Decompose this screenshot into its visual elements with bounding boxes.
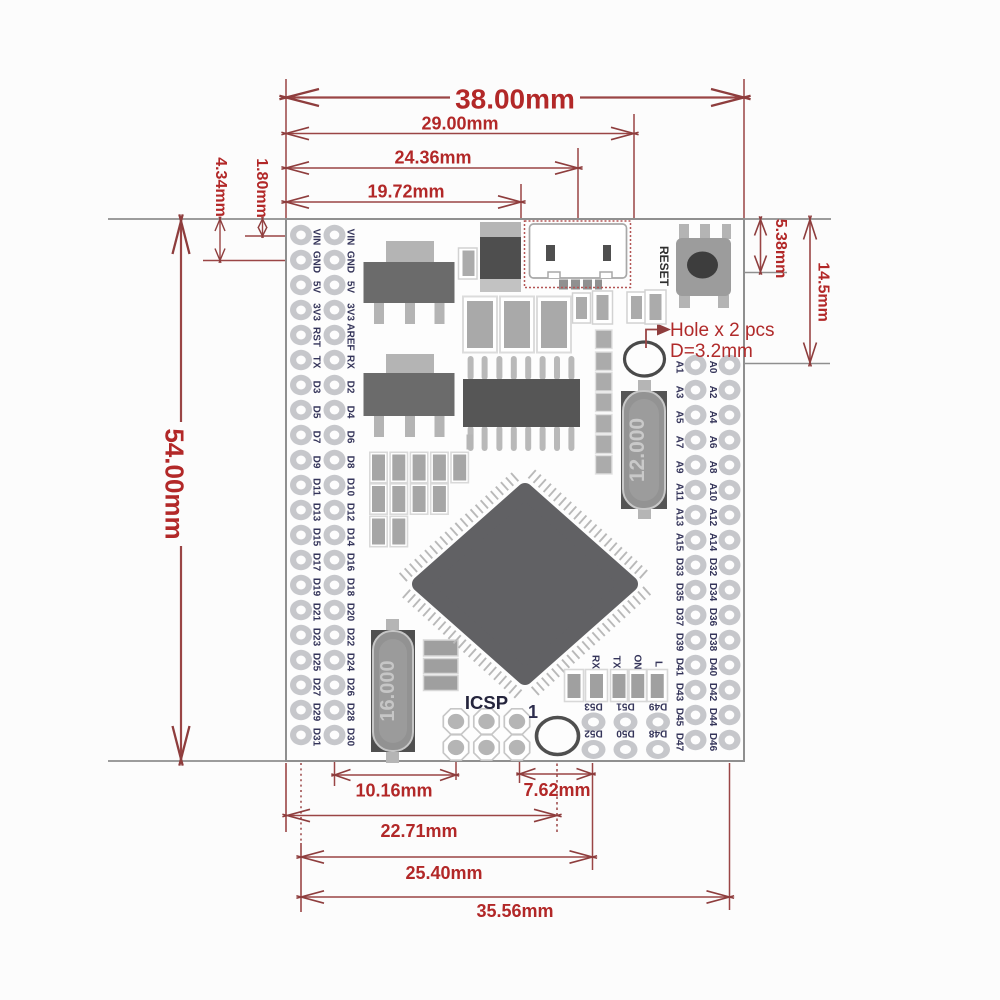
svg-text:D18: D18 [345, 578, 356, 597]
svg-text:RST: RST [311, 327, 322, 347]
svg-text:D50: D50 [616, 728, 635, 739]
svg-text:A9: A9 [674, 461, 685, 474]
svg-text:A7: A7 [674, 436, 685, 449]
svg-text:D21: D21 [311, 603, 322, 622]
svg-text:D17: D17 [311, 553, 322, 572]
svg-text:D11: D11 [311, 478, 322, 496]
svg-text:D48: D48 [648, 728, 667, 739]
svg-text:D41: D41 [674, 658, 685, 677]
svg-text:35.56mm: 35.56mm [476, 901, 553, 921]
svg-text:5V: 5V [345, 281, 356, 294]
svg-text:Hole x 2 pcs: Hole x 2 pcs [670, 320, 775, 341]
svg-text:4.34mm: 4.34mm [212, 157, 229, 217]
svg-text:D25: D25 [311, 653, 322, 672]
svg-text:25.40mm: 25.40mm [405, 863, 482, 883]
svg-text:A4: A4 [707, 411, 718, 424]
svg-text:38.00mm: 38.00mm [455, 84, 575, 115]
svg-text:D46: D46 [707, 733, 718, 752]
svg-text:10.16mm: 10.16mm [355, 781, 432, 801]
svg-text:22.71mm: 22.71mm [380, 821, 457, 841]
svg-text:D16: D16 [345, 553, 356, 572]
svg-text:A10: A10 [707, 483, 718, 502]
svg-text:D35: D35 [674, 583, 685, 602]
svg-text:A15: A15 [674, 533, 685, 552]
svg-text:D10: D10 [345, 478, 356, 497]
svg-text:D7: D7 [311, 431, 322, 444]
svg-text:D32: D32 [707, 558, 718, 577]
svg-text:5V: 5V [311, 281, 322, 294]
svg-text:L: L [653, 661, 664, 667]
svg-text:D8: D8 [345, 456, 356, 469]
svg-text:GND: GND [345, 251, 356, 273]
svg-text:D52: D52 [584, 728, 603, 739]
svg-text:A0: A0 [707, 361, 718, 374]
svg-text:D19: D19 [311, 578, 322, 597]
svg-text:ICSP: ICSP [465, 692, 508, 713]
svg-text:D44: D44 [707, 708, 718, 727]
svg-text:D=3.2mm: D=3.2mm [670, 341, 753, 362]
svg-text:3V3: 3V3 [345, 303, 356, 321]
svg-text:D45: D45 [674, 708, 685, 727]
svg-text:5.38mm: 5.38mm [772, 219, 789, 279]
svg-text:A11: A11 [674, 483, 685, 501]
svg-text:A2: A2 [707, 386, 718, 399]
svg-text:3V3: 3V3 [311, 303, 322, 321]
svg-text:RX: RX [345, 355, 356, 369]
svg-text:D4: D4 [345, 406, 356, 419]
svg-text:D12: D12 [345, 503, 356, 522]
svg-text:D6: D6 [345, 431, 356, 444]
svg-text:D47: D47 [674, 733, 685, 752]
svg-text:AREF: AREF [345, 323, 356, 350]
svg-text:A12: A12 [707, 508, 718, 527]
svg-text:1: 1 [528, 702, 538, 722]
svg-text:D27: D27 [311, 678, 322, 697]
svg-text:D43: D43 [674, 683, 685, 702]
svg-text:D20: D20 [345, 603, 356, 622]
svg-text:D37: D37 [674, 608, 685, 627]
svg-text:16.000: 16.000 [377, 660, 399, 721]
svg-text:D22: D22 [345, 628, 356, 647]
svg-text:A3: A3 [674, 386, 685, 399]
svg-text:D34: D34 [707, 583, 718, 602]
svg-text:RX: RX [590, 655, 601, 669]
svg-text:D31: D31 [311, 728, 322, 747]
svg-text:TX: TX [311, 356, 322, 369]
svg-text:D38: D38 [707, 633, 718, 652]
svg-text:A8: A8 [707, 461, 718, 474]
svg-text:7.62mm: 7.62mm [523, 780, 590, 800]
svg-text:D30: D30 [345, 728, 356, 747]
svg-text:GND: GND [311, 251, 322, 273]
svg-text:D5: D5 [311, 406, 322, 419]
svg-text:24.36mm: 24.36mm [394, 148, 471, 168]
svg-text:1.80mm: 1.80mm [253, 158, 270, 218]
svg-text:TX: TX [611, 656, 622, 669]
svg-text:D26: D26 [345, 678, 356, 697]
svg-text:D9: D9 [311, 456, 322, 469]
svg-text:D13: D13 [311, 503, 322, 522]
svg-text:D14: D14 [345, 528, 356, 547]
svg-text:54.00mm: 54.00mm [160, 428, 190, 539]
svg-text:D15: D15 [311, 528, 322, 547]
svg-text:D24: D24 [345, 653, 356, 672]
svg-text:A5: A5 [674, 411, 685, 424]
svg-text:VIN: VIN [345, 229, 356, 246]
svg-text:A1: A1 [674, 361, 685, 374]
svg-text:D39: D39 [674, 633, 685, 652]
svg-text:D2: D2 [345, 381, 356, 394]
svg-text:12.000: 12.000 [626, 418, 649, 482]
svg-text:D29: D29 [311, 703, 322, 722]
svg-text:D23: D23 [311, 628, 322, 647]
svg-text:D33: D33 [674, 558, 685, 577]
svg-text:D3: D3 [311, 381, 322, 394]
svg-text:A6: A6 [707, 436, 718, 449]
svg-text:D40: D40 [707, 658, 718, 677]
svg-text:D42: D42 [707, 683, 718, 702]
svg-text:D36: D36 [707, 608, 718, 627]
svg-text:29.00mm: 29.00mm [421, 114, 498, 134]
svg-text:D28: D28 [345, 703, 356, 722]
svg-text:14.5mm: 14.5mm [815, 262, 832, 322]
svg-text:19.72mm: 19.72mm [367, 182, 444, 202]
svg-text:RESET: RESET [657, 246, 671, 287]
svg-text:VIN: VIN [311, 229, 322, 246]
svg-text:ON: ON [632, 655, 643, 670]
svg-text:A14: A14 [707, 533, 718, 552]
svg-text:A13: A13 [674, 508, 685, 527]
